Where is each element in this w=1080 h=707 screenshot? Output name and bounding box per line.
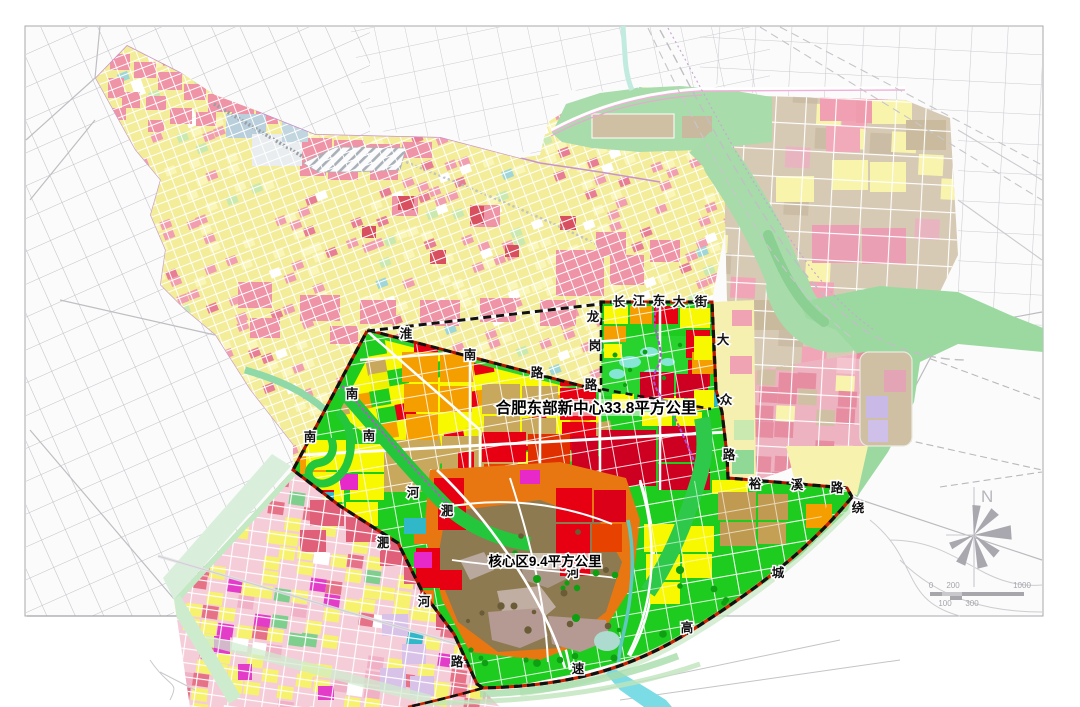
- svg-text:路: 路: [831, 480, 844, 495]
- svg-text:龙: 龙: [586, 309, 600, 324]
- svg-text:路: 路: [531, 365, 544, 380]
- svg-text:高: 高: [681, 620, 694, 635]
- svg-text:速: 速: [572, 661, 585, 676]
- svg-text:路: 路: [451, 654, 464, 669]
- svg-text:众: 众: [720, 392, 733, 407]
- svg-text:长: 长: [613, 294, 626, 309]
- svg-text:河: 河: [407, 485, 420, 500]
- svg-text:溪: 溪: [791, 477, 804, 492]
- svg-text:岗: 岗: [589, 338, 602, 353]
- svg-text:100: 100: [938, 599, 952, 608]
- svg-text:绕: 绕: [852, 500, 865, 515]
- svg-text:核心区9.4平方公里: 核心区9.4平方公里: [488, 553, 602, 569]
- svg-text:路: 路: [585, 377, 598, 392]
- svg-text:街: 街: [694, 294, 708, 309]
- svg-text:河: 河: [418, 594, 431, 609]
- svg-text:江: 江: [633, 293, 646, 308]
- svg-text:东: 东: [653, 293, 666, 308]
- svg-text:大: 大: [673, 294, 686, 309]
- svg-text:城: 城: [772, 565, 785, 580]
- svg-text:南: 南: [304, 429, 317, 444]
- svg-text:300: 300: [965, 599, 979, 608]
- svg-text:大: 大: [717, 332, 730, 347]
- svg-text:裕: 裕: [749, 476, 762, 491]
- svg-text:淝: 淝: [441, 503, 454, 518]
- svg-text:200: 200: [946, 581, 960, 590]
- svg-text:路: 路: [723, 447, 736, 462]
- svg-text:1000: 1000: [1013, 581, 1031, 590]
- svg-text:N: N: [981, 487, 993, 506]
- svg-text:合肥东部新中心33.8平方公里: 合肥东部新中心33.8平方公里: [496, 398, 697, 417]
- svg-text:淝: 淝: [377, 535, 390, 550]
- svg-text:南: 南: [346, 386, 359, 401]
- svg-text:南: 南: [363, 428, 376, 443]
- svg-text:淮: 淮: [400, 326, 413, 341]
- svg-text:0: 0: [929, 581, 934, 590]
- svg-text:南: 南: [464, 347, 477, 362]
